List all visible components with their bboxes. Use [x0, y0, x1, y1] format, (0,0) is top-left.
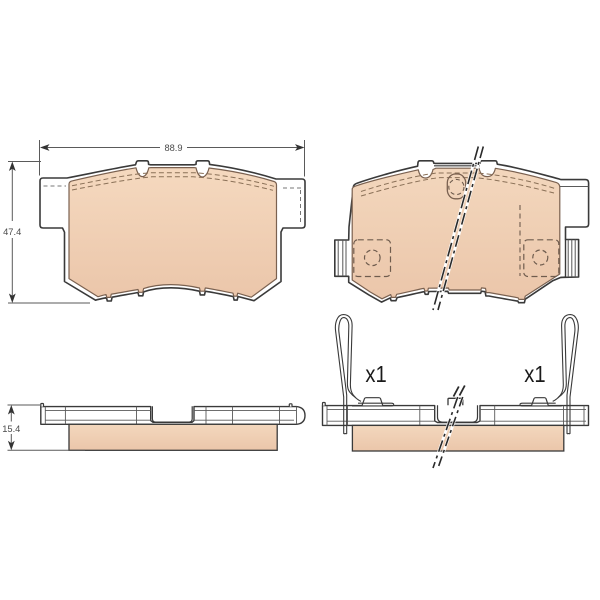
svg-text:88.9: 88.9	[164, 143, 182, 153]
svg-text:x1: x1	[365, 360, 386, 387]
svg-text:15.4: 15.4	[2, 424, 20, 434]
svg-text:x1: x1	[524, 360, 545, 387]
svg-text:47.4: 47.4	[3, 227, 21, 237]
